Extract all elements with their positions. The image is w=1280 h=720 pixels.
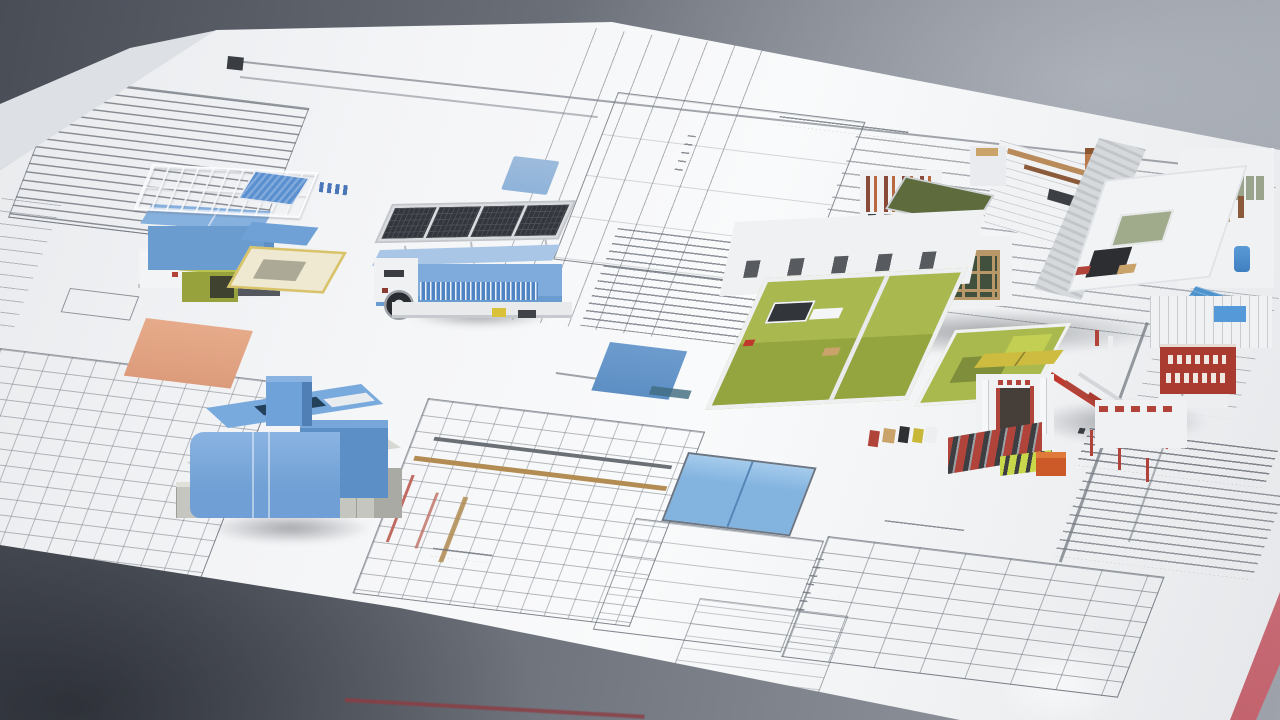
louver-band <box>420 282 538 300</box>
bench-item-tan <box>882 428 896 444</box>
walkway-post-1 <box>1090 430 1093 456</box>
fin-side <box>302 376 312 426</box>
base-yellow-block <box>492 308 506 317</box>
bench-item-yellow <box>912 428 924 443</box>
chimney-lining <box>976 148 998 156</box>
glass-partition <box>1110 209 1174 247</box>
white-stair-slab <box>1095 400 1187 448</box>
left-small-rect <box>61 288 140 321</box>
left-margin-notes <box>0 198 61 335</box>
bench-item-white <box>924 426 938 444</box>
roof-pole-white <box>1108 336 1113 350</box>
white-counter <box>809 308 844 320</box>
red-sheet-line <box>345 698 645 719</box>
court-box-front-face <box>190 432 340 518</box>
walkway-post-3 <box>1146 458 1149 482</box>
cab-red-dot <box>172 272 178 277</box>
bench-row <box>868 424 938 452</box>
door-red-frame-left <box>996 388 1000 434</box>
orange-kiosk <box>1036 452 1066 476</box>
chimney <box>970 146 1006 186</box>
cab-slot <box>384 270 404 277</box>
pad-seam <box>1014 352 1026 366</box>
base-dark-block <box>518 310 536 318</box>
sign-lettering-row <box>1168 355 1226 364</box>
kitchen-unit <box>765 300 816 323</box>
courtyard-interior <box>253 259 306 281</box>
studio-scene <box>0 0 1280 720</box>
red-dash-stripe <box>1099 406 1179 412</box>
right-face-top-strip <box>300 420 388 428</box>
blue-ink-dashes <box>319 182 350 196</box>
trailer-base <box>392 302 572 318</box>
sign-blue-rect <box>1214 306 1246 322</box>
schedule-caption <box>882 520 964 537</box>
tower-fin <box>266 376 312 426</box>
kiosk-top <box>1036 452 1066 458</box>
fin-cap <box>266 376 312 382</box>
sign-lettering-row-2 <box>1166 373 1228 383</box>
bench-item-dark <box>898 426 910 443</box>
orange-zone-highlight <box>124 318 253 389</box>
portico-column-left <box>982 380 989 436</box>
blue-water-tank <box>1234 246 1250 272</box>
rooftop-tan-chair <box>1117 264 1137 275</box>
cab-red-mark <box>382 288 388 293</box>
red-plan-line-2 <box>414 492 439 548</box>
lintel-red-marks <box>998 380 1032 385</box>
border-frame-marker <box>227 56 244 71</box>
roof-pole-red <box>1095 330 1099 346</box>
white-ledge <box>323 393 374 408</box>
front-groove-2 <box>268 432 270 518</box>
right-white-deck <box>1150 296 1272 348</box>
front-groove <box>252 432 254 518</box>
wood-post-dark <box>1238 196 1244 218</box>
solar-panel-canopy <box>375 200 577 243</box>
red-sign <box>1160 344 1236 394</box>
room-divider <box>726 462 753 527</box>
bench-item-red <box>868 430 880 447</box>
